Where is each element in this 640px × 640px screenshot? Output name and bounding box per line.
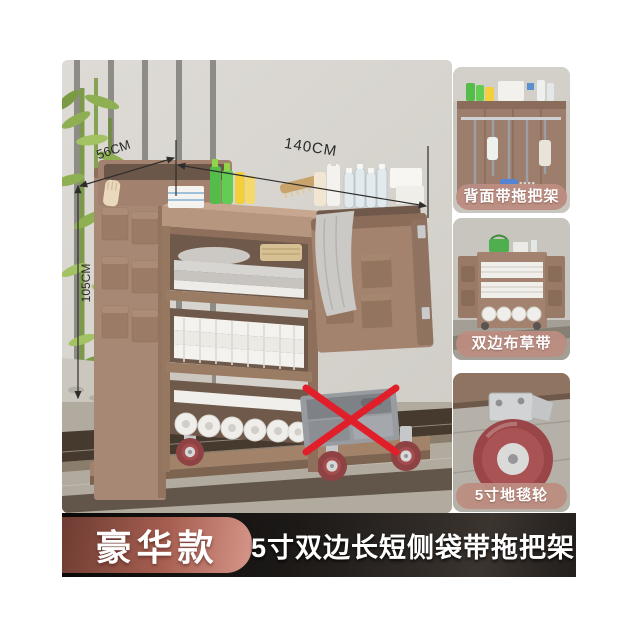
left-side-panel <box>94 168 166 500</box>
main-photo-scene <box>62 60 452 513</box>
linen-shelf-1 <box>170 234 308 300</box>
linen-shelf-3 <box>170 380 308 444</box>
amenity-boxes <box>168 186 204 208</box>
product-image: 56CM 140CM 105CM <box>0 0 640 640</box>
banner-title: 5寸双边长短侧袋带拖把架 <box>254 513 572 577</box>
right-wing-pockets <box>545 256 565 318</box>
linen-shelf-2 <box>170 308 308 372</box>
inset-wheel: 5寸地毯轮 <box>453 373 570 512</box>
inset-mop-rack-caption: 背面带拖把架 <box>456 184 567 210</box>
mop-rack-bar <box>461 117 561 120</box>
bottom-banner: 豪华款 5寸双边长短侧袋带拖把架 <box>62 513 576 577</box>
model-badge: 豪华款 <box>62 517 252 573</box>
right-hanging-bin <box>310 205 433 353</box>
inset-side-pockets: 双边布草带 <box>453 218 570 360</box>
woven-basket <box>260 244 302 261</box>
main-photo <box>62 60 452 513</box>
inset-wheel-caption: 5寸地毯轮 <box>456 483 567 509</box>
inset-mop-rack: 背面带拖把架 <box>453 67 570 213</box>
inset-side-pockets-caption: 双边布草带 <box>456 331 567 357</box>
shelf-unit <box>162 226 318 472</box>
left-wing-pockets <box>458 256 478 318</box>
